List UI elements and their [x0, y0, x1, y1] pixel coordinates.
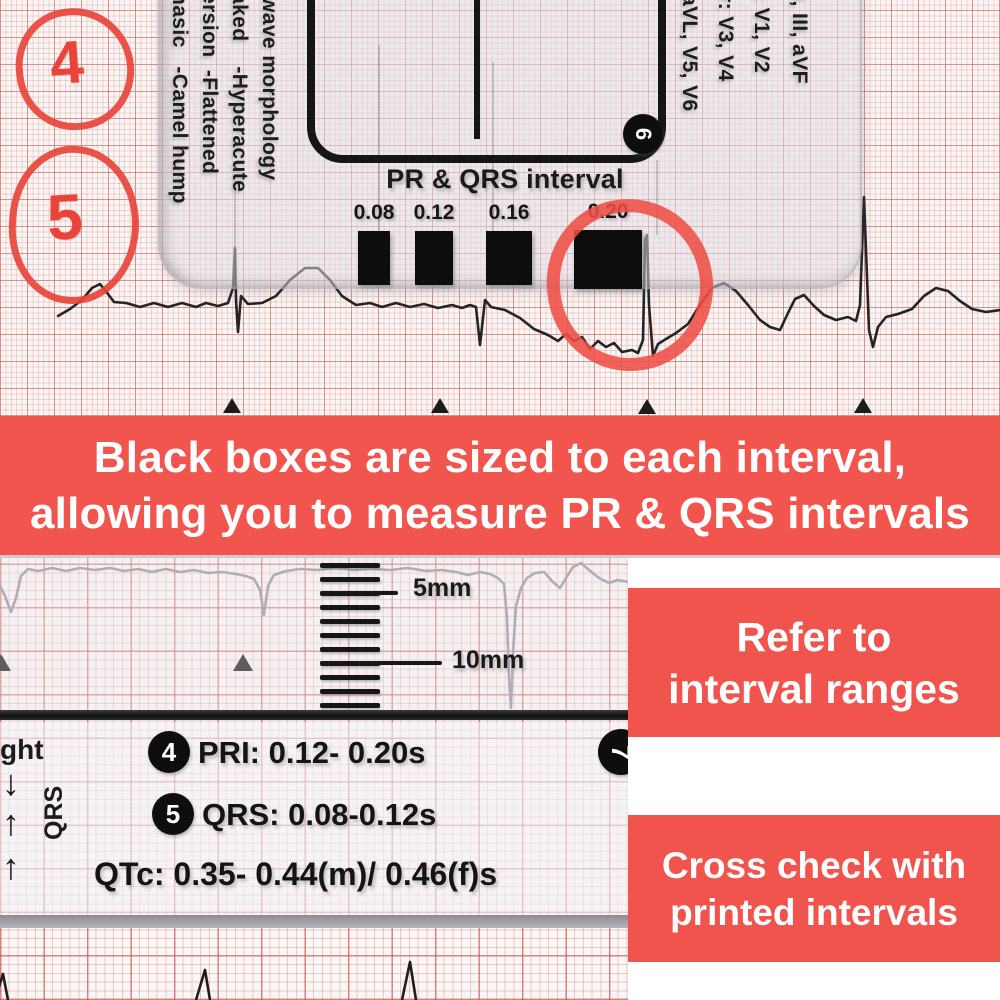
banner: Black boxes are sized to each interval, … [0, 416, 1000, 558]
triangle-marker-icon [0, 654, 11, 671]
mm-bar [320, 563, 380, 568]
card-window-divider [474, 0, 480, 139]
card-text-wave-morphology: wave morphology [257, 0, 281, 181]
up-arrow-icon: ↑ [2, 802, 20, 844]
step-badge-7-number: 7 [606, 744, 629, 759]
interval-box-label: 0.16 [489, 201, 530, 225]
qrs-axis-label: QRS [40, 786, 69, 840]
interval-box-016: 0.16 [476, 201, 542, 285]
card-text-inferior-leads: II, III, aVF [787, 0, 811, 84]
step-badge-5-number: 5 [166, 799, 180, 830]
callout-panel: Refer to interval ranges Cross check wit… [628, 558, 1000, 1000]
circled-step-4-number: 4 [48, 27, 86, 98]
ruler-edge-divider [0, 710, 628, 720]
banner-line-2: allowing you to measure PR & QRS interva… [30, 486, 970, 542]
step-badge-4: 4 [148, 731, 190, 773]
down-arrow-icon: ↓ [2, 762, 20, 804]
triangle-marker-icon [223, 398, 241, 413]
mm-line-10mm [320, 661, 442, 665]
mm-bar [320, 605, 380, 610]
card-wash [0, 558, 628, 711]
callout-cross-line-2: printed intervals [670, 889, 958, 936]
triangle-marker-icon [233, 654, 253, 671]
interval-box-012: 0.12 [405, 201, 463, 285]
qrs-range-text: QRS: 0.08-0.12s [202, 797, 436, 833]
mm-line-5mm [320, 591, 398, 595]
card-text-lateral-leads: aVL, V5, V6 [677, 0, 701, 112]
mm-bar [320, 577, 380, 582]
step-badge-6: 6 [623, 114, 663, 154]
interval-box-008: 0.08 [348, 201, 400, 285]
interval-black-box [358, 231, 390, 285]
callout-cross-line-1: Cross check with [662, 842, 966, 889]
interval-scale-title: PR & QRS interval [355, 164, 655, 195]
triangle-marker-icon [431, 398, 449, 413]
callout-refer-line-2: interval ranges [668, 663, 960, 715]
card-text-anterior-leads: r: V3, V4 [713, 0, 737, 82]
banner-line-1: Black boxes are sized to each interval, [94, 430, 906, 486]
interval-box-label: 0.12 [414, 201, 455, 225]
card-text-septal-leads: : V1, V2 [749, 0, 773, 73]
scale-label-10mm: 10mm [452, 646, 524, 675]
callout-cross-check: Cross check with printed intervals [628, 815, 1000, 962]
interval-black-box [486, 231, 532, 285]
card-window-frame [307, 0, 666, 163]
mm-bar [320, 703, 380, 708]
card-text-hyperacute: aked -Hyperacute [227, 0, 251, 192]
callout-refer: Refer to interval ranges [628, 588, 1000, 737]
pri-range-text: PRI: 0.12- 0.20s [198, 735, 425, 771]
qtc-range-text: QTc: 0.35- 0.44(m)/ 0.46(f)s [94, 856, 497, 893]
mm-bar [320, 633, 380, 638]
mm-bar [320, 619, 380, 624]
triangle-marker-icon [638, 399, 656, 414]
card-bottom-edge [0, 915, 628, 928]
scale-label-5mm: 5mm [413, 574, 471, 603]
bottom-edge-spikes [0, 962, 416, 1000]
mm-bar [320, 647, 380, 652]
interval-black-box [415, 231, 453, 285]
interval-box-label: 0.08 [354, 201, 395, 225]
up-arrow-icon: ↑ [2, 846, 20, 888]
step-badge-6-number: 6 [630, 128, 656, 140]
mm-bar [320, 689, 380, 694]
step-badge-5: 5 [152, 793, 194, 835]
triangle-marker-icon [854, 398, 872, 413]
card-text-camel-hump: hasic -Camel hump [167, 0, 191, 204]
top-ecg-photo: 6 hasic -Camel hump ersion -Flattened ak… [0, 0, 1000, 416]
product-collage: 6 hasic -Camel hump ersion -Flattened ak… [0, 0, 1000, 1000]
bottom-ecg-photo: 5mm 10mm ght ↓ ↑ ↑ QRS 4 PRI: 0.12- 0.20… [0, 558, 628, 1000]
callout-refer-line-1: Refer to [737, 611, 892, 663]
ghost-spike [234, 180, 236, 285]
mm-bar [320, 675, 380, 680]
step-badge-4-number: 4 [162, 737, 176, 768]
card-text-flattened: ersion -Flattened [197, 0, 221, 174]
circled-step-5-number: 5 [45, 179, 84, 255]
